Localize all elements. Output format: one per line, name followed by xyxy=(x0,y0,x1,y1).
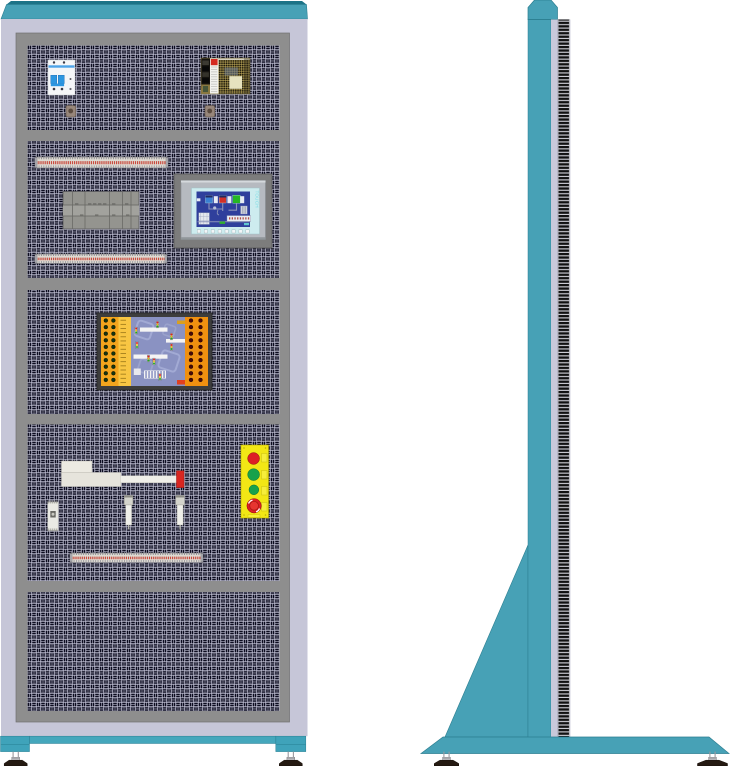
svg-text:TOUCH: TOUCH xyxy=(254,191,259,208)
